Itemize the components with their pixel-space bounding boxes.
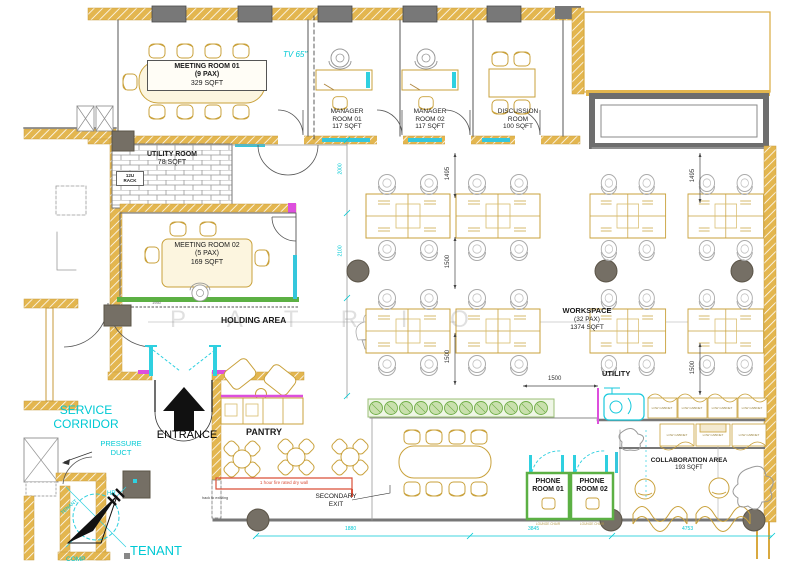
workspace-label: WORKSPACE (32 PAX) 1374 SQFT [554,307,620,331]
utility-sink [598,388,644,424]
secondary-exit-label: SECONDARYEXIT [312,493,360,508]
low-cabinets [648,394,767,450]
manager-room-01-label: MANAGERROOM 01117 SQFT [322,108,372,131]
phone-room-01-label: PHONEROOM 01 [528,478,568,495]
dim-1495-a: 1495 [445,167,452,180]
tenant-label: TENANT [130,543,182,558]
svg-text:LOW CABINET: LOW CABINET [682,406,703,410]
pressure-duct-label: PRESSUREDUCT [88,440,154,458]
svg-text:LOW CABINET: LOW CABINET [652,406,673,410]
hack-note: hack to existing [202,496,228,500]
utility-room-label: UTILITY ROOM78 SQFT [122,151,222,168]
entrance-label: ENTRANCE [143,429,231,442]
dim-1500-h: 1500 [548,376,561,383]
dim-1500-a: 1500 [445,255,452,268]
dim-1880: 1880 [345,527,356,533]
floor-plan: LOW CABINET LOW CABINET LOW CABINET LOW … [0,0,800,578]
meeting-room-01-label: MEETING ROOM 01 (9 PAX) 329 SQFT [147,60,267,91]
svg-text:LOW CABINET: LOW CABINET [703,433,724,437]
entrance-arrow-icon [163,387,205,431]
svg-text:LOW CABINET: LOW CABINET [742,406,763,410]
svg-text:LOUNGE CHAIR: LOUNGE CHAIR [536,522,561,526]
hr-label: HR [107,491,116,498]
svg-text:LOW CABINET: LOW CABINET [739,433,760,437]
workstation-clusters [366,175,764,376]
dim-1500-b: 1500 [445,350,452,363]
floor-plan-drawing: LOW CABINET LOW CABINET LOW CABINET LOW … [0,0,800,578]
dim-4753: 4753 [682,527,693,533]
meeting-room-02-label: MEETING ROOM 02(5 PAX)169 SQFT [152,242,262,267]
pantry-label: PANTRY [246,427,282,438]
service-corridor-label: SERVICECORRIDOR [34,403,138,431]
entrance-doors [145,346,221,441]
dim-3845: 3845 [528,527,539,533]
discussion-room-furniture [489,52,535,114]
fire-wall-note: 1 hour fire rated dry wall [219,480,349,485]
tv-label: TV 65" [283,50,307,59]
svg-text:LOW CABINET: LOW CABINET [667,433,688,437]
svg-text:LOUNGE CHAIR: LOUNGE CHAIR [580,522,605,526]
utility-label: UTILITY [602,370,630,379]
dim-2100: 2100 [339,245,345,256]
manager-room-02-label: MANAGERROOM 02117 SQFT [405,108,455,131]
dimension-lines [455,153,700,395]
collaboration-area-label: COLLABORATION AREA 193 SQFT [636,457,742,472]
holding-area-label: HOLDING AREA [221,315,286,325]
dim-1495-b: 1495 [690,169,697,182]
dim-2000: 2000 [339,163,345,174]
manager-rooms-furniture [316,49,458,109]
dim-1950: 1950 [152,301,161,306]
svg-text:LOW CABINET: LOW CABINET [712,406,733,410]
phone-room-02-label: PHONEROOM 02 [572,478,612,495]
discussion-room-label: DISCUSSIONROOM100 SQFT [490,108,546,131]
planter-strip [368,399,554,417]
dim-1500-c: 1500 [690,361,697,374]
rack-label: 12URACK [116,171,144,186]
comp-label: COMP [66,556,86,564]
watermark: P A T R I O [170,306,487,334]
